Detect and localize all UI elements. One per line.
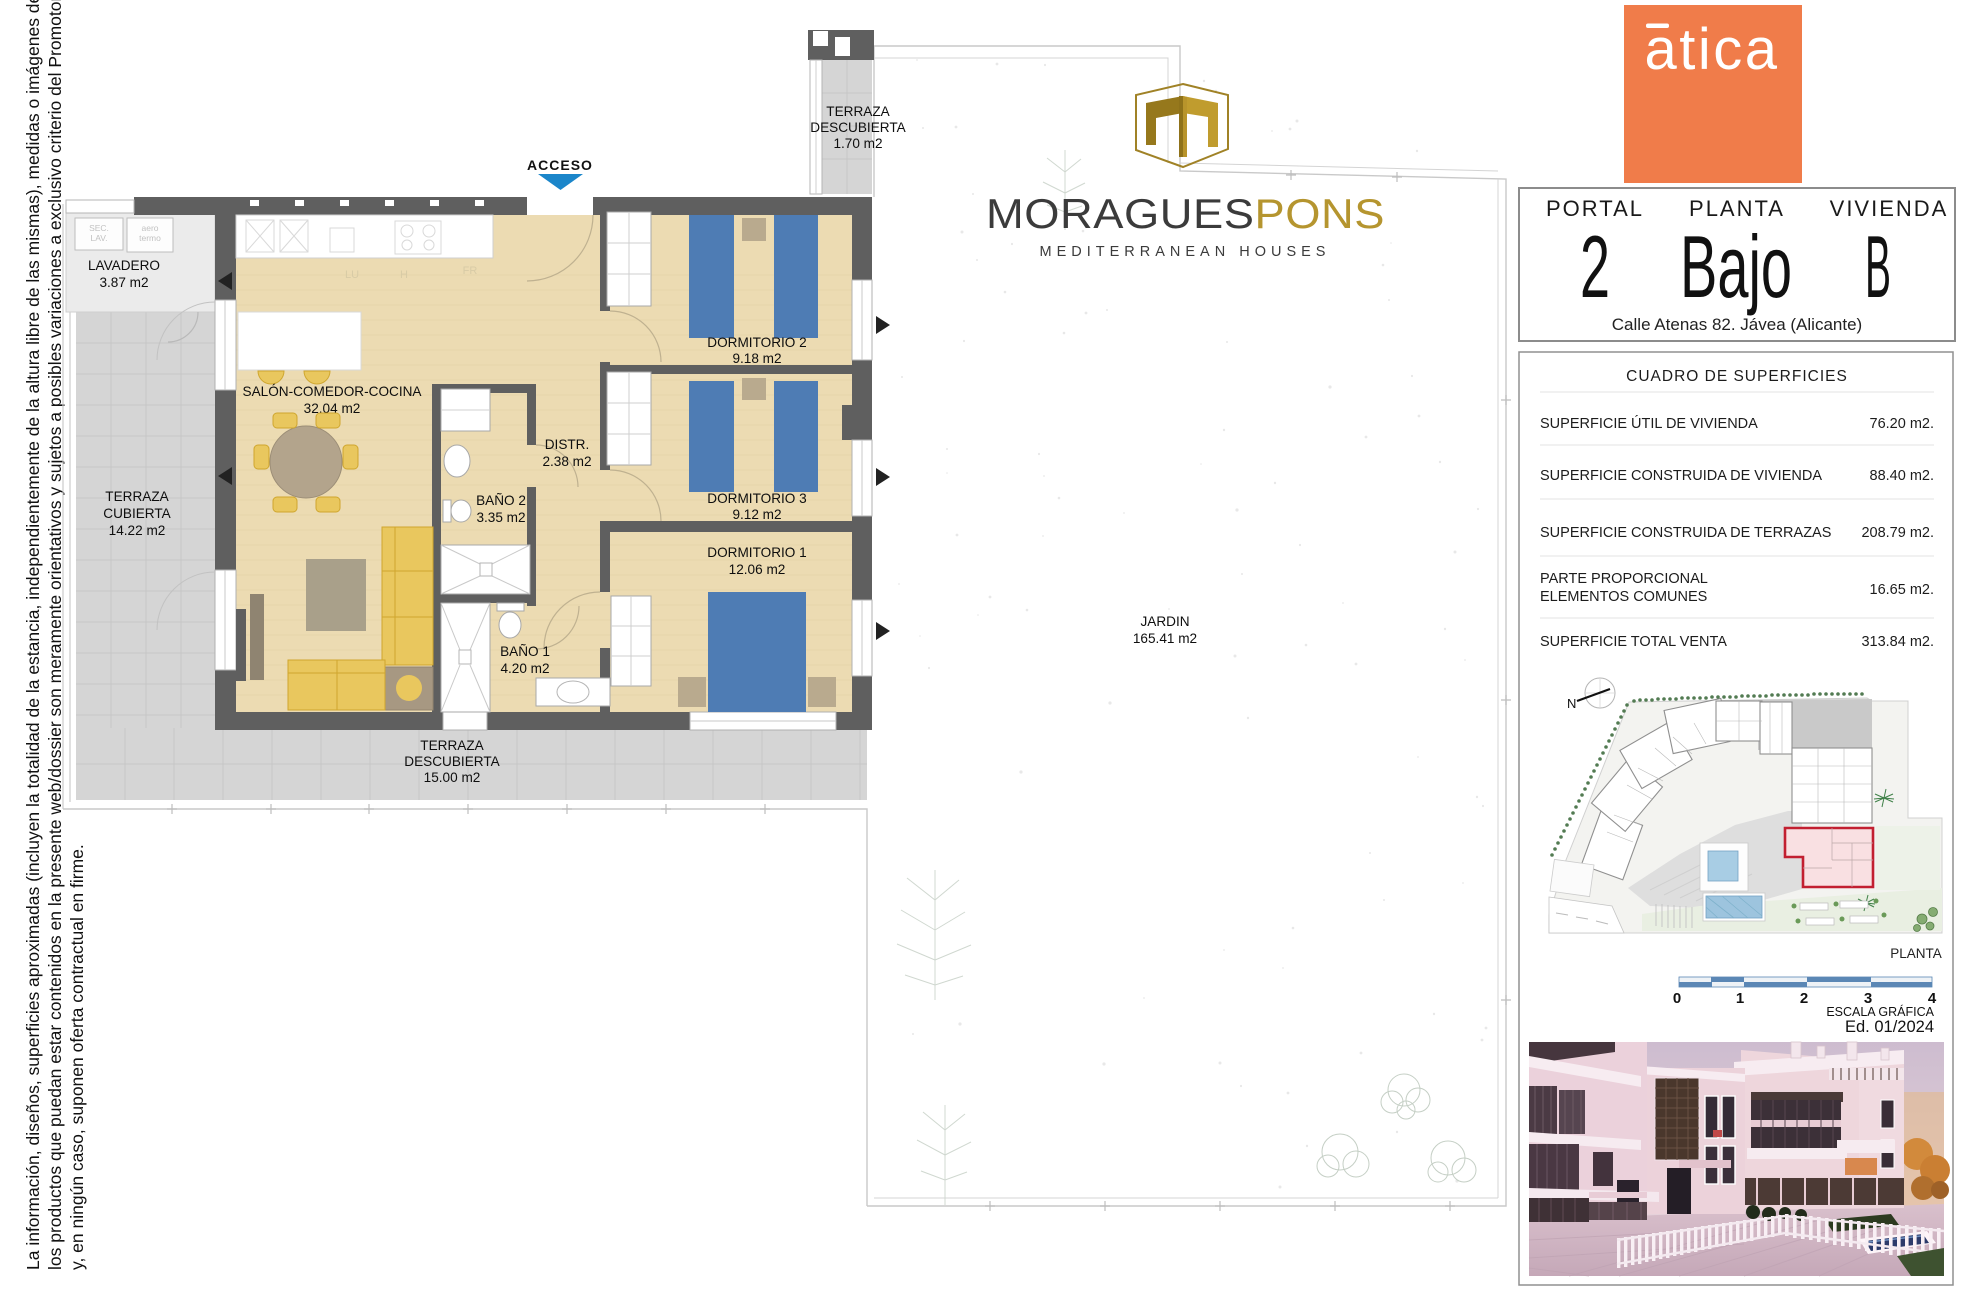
svg-text:12.06 m2: 12.06 m2 (729, 562, 786, 577)
svg-text:DESCUBIERTA: DESCUBIERTA (810, 120, 906, 135)
svg-text:ESCALA GRÁFICA: ESCALA GRÁFICA (1826, 1004, 1934, 1019)
svg-text:Bajo: Bajo (1680, 217, 1792, 316)
svg-text:ELEMENTOS COMUNES: ELEMENTOS COMUNES (1540, 589, 1707, 605)
svg-text:2.38 m2: 2.38 m2 (542, 454, 591, 469)
svg-text:3.87 m2: 3.87 m2 (99, 275, 148, 290)
svg-text:DISTR.: DISTR. (545, 437, 590, 452)
svg-text:DORMITORIO 3: DORMITORIO 3 (707, 491, 806, 506)
svg-text:1: 1 (1736, 990, 1744, 1007)
svg-text:PARTE PROPORCIONAL: PARTE PROPORCIONAL (1540, 571, 1708, 587)
svg-text:CUADRO DE SUPERFICIES: CUADRO DE SUPERFICIES (1626, 368, 1848, 385)
svg-text:TERRAZA: TERRAZA (826, 104, 890, 119)
svg-text:SUPERFICIE TOTAL VENTA: SUPERFICIE TOTAL VENTA (1540, 634, 1727, 650)
svg-text:LAV.: LAV. (90, 233, 107, 243)
svg-text:313.84 m2.: 313.84 m2. (1861, 634, 1934, 650)
svg-text:3.35 m2: 3.35 m2 (476, 510, 525, 525)
svg-text:termo: termo (139, 233, 161, 243)
svg-text:ACCESO: ACCESO (527, 157, 593, 173)
svg-text:15.00 m2: 15.00 m2 (424, 770, 481, 785)
svg-text:MEDITERRANEAN HOUSES: MEDITERRANEAN HOUSES (1040, 244, 1331, 260)
svg-text:2: 2 (1800, 990, 1808, 1007)
svg-text:208.79 m2.: 208.79 m2. (1861, 525, 1934, 541)
svg-text:BAÑO 2: BAÑO 2 (476, 493, 526, 508)
svg-text:Calle Atenas 82. Jávea (Alican: Calle Atenas 82. Jávea (Alicante) (1612, 315, 1862, 334)
svg-text:4.20 m2: 4.20 m2 (500, 661, 549, 676)
svg-text:14.22 m2: 14.22 m2 (109, 523, 166, 538)
svg-text:165.41 m2: 165.41 m2 (1133, 631, 1197, 646)
svg-text:88.40 m2.: 88.40 m2. (1870, 468, 1935, 484)
svg-text:BAÑO 1: BAÑO 1 (500, 644, 550, 659)
svg-text:SALÓN-COMEDOR-COCINA: SALÓN-COMEDOR-COCINA (243, 384, 423, 399)
svg-text:SUPERFICIE CONSTRUIDA DE VIVIE: SUPERFICIE CONSTRUIDA DE VIVIENDA (1540, 468, 1822, 484)
svg-text:2: 2 (1580, 217, 1610, 316)
svg-text:SEC.: SEC. (89, 223, 109, 233)
svg-text:DESCUBIERTA: DESCUBIERTA (404, 754, 500, 769)
svg-text:JARDIN: JARDIN (1140, 614, 1189, 629)
svg-text:aero: aero (141, 223, 158, 233)
svg-text:y, en ningún caso, suponen ofe: y, en ningún caso, suponen oferta contra… (67, 844, 87, 1270)
svg-text:TERRAZA: TERRAZA (105, 489, 169, 504)
svg-text:LU: LU (345, 269, 359, 281)
svg-text:PLANTA: PLANTA (1890, 946, 1942, 961)
svg-text:H: H (400, 269, 408, 281)
svg-text:TERRAZA: TERRAZA (420, 738, 484, 753)
svg-text:B: B (1865, 217, 1891, 316)
svg-text:9.18 m2: 9.18 m2 (732, 351, 781, 366)
svg-text:76.20 m2.: 76.20 m2. (1870, 416, 1935, 432)
svg-text:0: 0 (1673, 990, 1681, 1007)
svg-text:SUPERFICIE ÚTIL DE VIVIENDA: SUPERFICIE ÚTIL DE VIVIENDA (1540, 415, 1758, 432)
svg-text:9.12 m2: 9.12 m2 (732, 507, 781, 522)
svg-text:Ed. 01/2024: Ed. 01/2024 (1845, 1018, 1934, 1036)
svg-text:los productos que puedan estar: los productos que puedan estar contenido… (45, 0, 65, 1270)
svg-text:16.65 m2.: 16.65 m2. (1870, 582, 1935, 598)
svg-text:La información, diseños, super: La información, diseños, superficies apr… (23, 0, 43, 1270)
svg-text:DORMITORIO 2: DORMITORIO 2 (707, 335, 806, 350)
svg-text:FR: FR (463, 265, 478, 277)
svg-text:LAVADERO: LAVADERO (88, 258, 160, 273)
svg-text:1.70 m2: 1.70 m2 (833, 136, 882, 151)
svg-text:N: N (1567, 696, 1576, 711)
svg-text:SUPERFICIE CONSTRUIDA DE TERRA: SUPERFICIE CONSTRUIDA DE TERRAZAS (1540, 525, 1831, 541)
svg-text:CUBIERTA: CUBIERTA (103, 506, 171, 521)
svg-text:MORAGUESPONS: MORAGUESPONS (986, 190, 1385, 237)
svg-text:DORMITORIO 1: DORMITORIO 1 (707, 545, 806, 560)
